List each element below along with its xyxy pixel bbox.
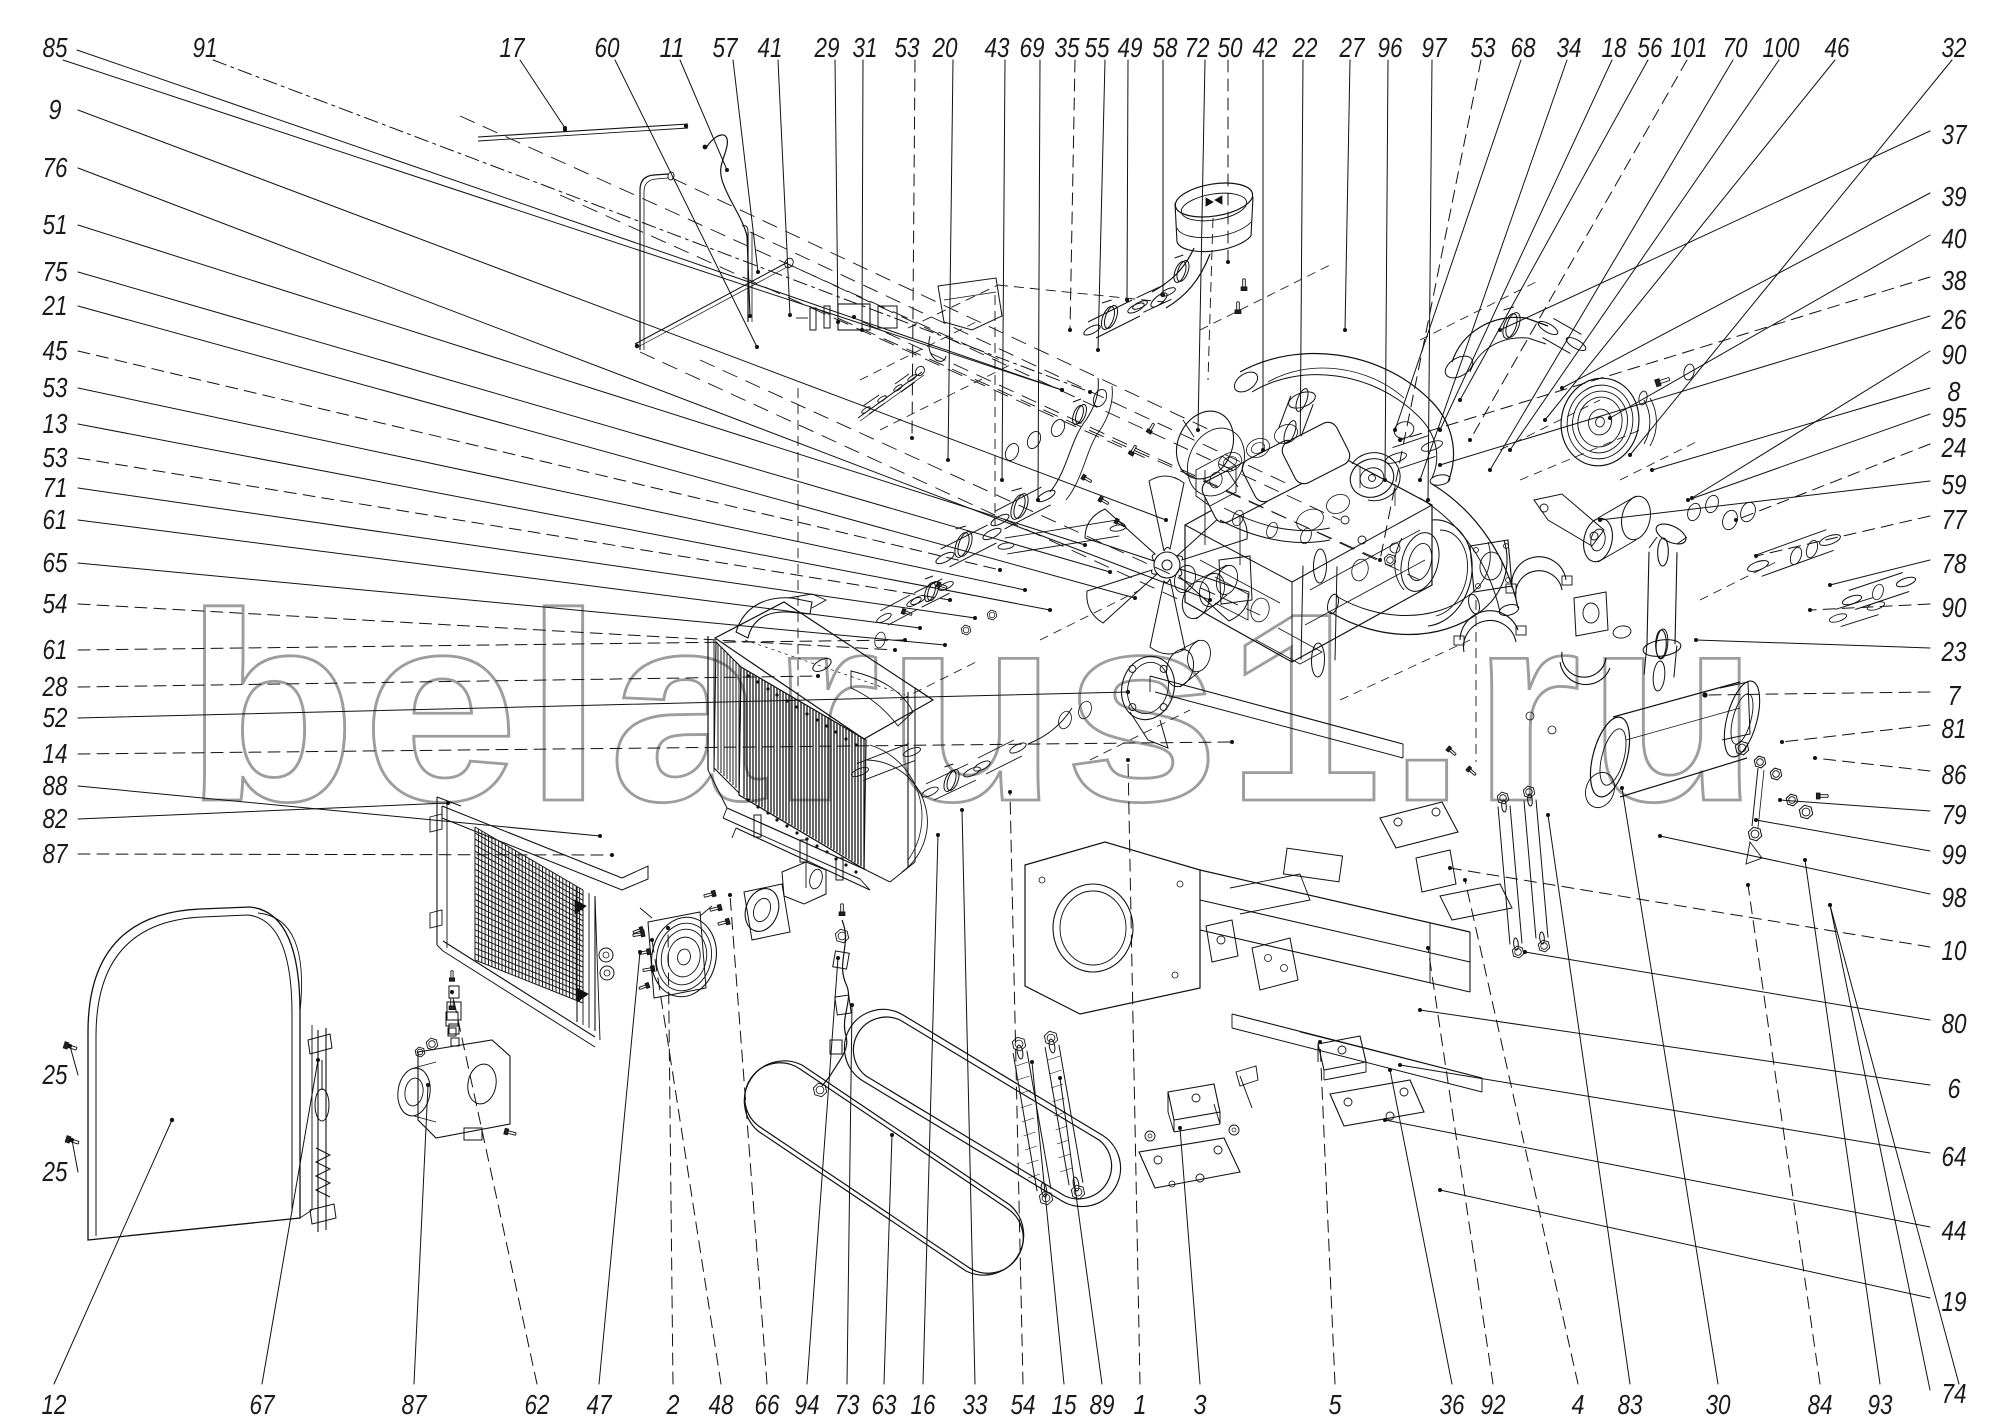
svg-text:34: 34 <box>1557 32 1582 63</box>
svg-text:38: 38 <box>1942 265 1967 296</box>
svg-text:96: 96 <box>1378 32 1403 63</box>
svg-text:88: 88 <box>43 770 68 801</box>
svg-text:27: 27 <box>1339 32 1366 63</box>
svg-text:92: 92 <box>1481 1389 1506 1420</box>
svg-text:71: 71 <box>43 472 68 503</box>
svg-text:99: 99 <box>1942 839 1967 870</box>
svg-text:95: 95 <box>1942 402 1967 433</box>
svg-text:16: 16 <box>911 1389 936 1420</box>
svg-text:63: 63 <box>872 1389 897 1420</box>
svg-text:84: 84 <box>1808 1389 1833 1420</box>
svg-text:31: 31 <box>853 32 878 63</box>
svg-text:22: 22 <box>1292 32 1318 63</box>
svg-text:87: 87 <box>402 1389 428 1420</box>
svg-text:30: 30 <box>1706 1389 1731 1420</box>
svg-text:49: 49 <box>1118 32 1143 63</box>
svg-text:43: 43 <box>985 32 1010 63</box>
svg-text:1: 1 <box>1134 1389 1147 1420</box>
svg-text:13: 13 <box>43 408 68 439</box>
svg-text:93: 93 <box>1868 1389 1893 1420</box>
svg-text:75: 75 <box>43 256 68 287</box>
svg-text:62: 62 <box>525 1389 550 1420</box>
svg-text:7: 7 <box>1948 680 1962 711</box>
svg-text:101: 101 <box>1671 32 1708 63</box>
svg-text:50: 50 <box>1218 32 1243 63</box>
svg-text:57: 57 <box>713 32 739 63</box>
svg-text:24: 24 <box>1941 432 1967 463</box>
svg-text:45: 45 <box>43 335 68 366</box>
svg-text:28: 28 <box>42 671 68 702</box>
svg-text:3: 3 <box>1194 1389 1207 1420</box>
svg-text:36: 36 <box>1440 1389 1465 1420</box>
svg-text:47: 47 <box>587 1389 613 1420</box>
svg-text:48: 48 <box>709 1389 734 1420</box>
svg-text:61: 61 <box>43 634 68 665</box>
svg-text:19: 19 <box>1942 1286 1967 1317</box>
svg-text:68: 68 <box>1511 32 1536 63</box>
svg-text:65: 65 <box>43 547 68 578</box>
svg-text:60: 60 <box>595 32 620 63</box>
svg-text:39: 39 <box>1942 181 1967 212</box>
svg-text:77: 77 <box>1942 504 1968 535</box>
svg-text:11: 11 <box>660 32 685 63</box>
svg-text:12: 12 <box>42 1389 67 1420</box>
svg-text:69: 69 <box>1020 32 1045 63</box>
svg-text:41: 41 <box>758 32 783 63</box>
svg-text:20: 20 <box>932 32 958 63</box>
svg-text:17: 17 <box>500 32 526 63</box>
svg-text:78: 78 <box>1942 548 1967 579</box>
svg-text:51: 51 <box>43 209 68 240</box>
svg-text:10: 10 <box>1942 935 1967 966</box>
svg-text:53: 53 <box>43 372 68 403</box>
svg-text:64: 64 <box>1942 1141 1967 1172</box>
svg-text:56: 56 <box>1638 32 1663 63</box>
svg-text:97: 97 <box>1422 32 1448 63</box>
svg-text:94: 94 <box>795 1389 820 1420</box>
svg-text:74: 74 <box>1942 1378 1967 1409</box>
svg-text:54: 54 <box>43 588 68 619</box>
svg-text:9: 9 <box>49 94 62 125</box>
svg-text:23: 23 <box>1941 636 1967 667</box>
svg-text:73: 73 <box>835 1389 860 1420</box>
svg-text:89: 89 <box>1090 1389 1115 1420</box>
svg-text:55: 55 <box>1085 32 1110 63</box>
svg-text:5: 5 <box>1329 1389 1342 1420</box>
svg-text:29: 29 <box>814 32 840 63</box>
svg-text:21: 21 <box>42 290 68 321</box>
svg-text:85: 85 <box>43 32 68 63</box>
svg-text:44: 44 <box>1942 1215 1967 1246</box>
svg-text:82: 82 <box>43 803 68 834</box>
svg-text:25: 25 <box>42 1059 68 1090</box>
svg-text:66: 66 <box>755 1389 780 1420</box>
svg-text:98: 98 <box>1942 882 1967 913</box>
svg-text:18: 18 <box>1602 32 1627 63</box>
svg-text:67: 67 <box>250 1389 276 1420</box>
svg-text:72: 72 <box>1185 32 1210 63</box>
svg-text:14: 14 <box>43 738 68 769</box>
svg-text:90: 90 <box>1942 592 1967 623</box>
svg-text:37: 37 <box>1942 119 1968 150</box>
svg-text:32: 32 <box>1942 32 1967 63</box>
svg-text:81: 81 <box>1942 713 1967 744</box>
svg-text:100: 100 <box>1763 32 1800 63</box>
svg-text:53: 53 <box>1471 32 1496 63</box>
svg-text:87: 87 <box>43 838 69 869</box>
svg-text:70: 70 <box>1723 32 1748 63</box>
svg-text:80: 80 <box>1942 1008 1967 1039</box>
svg-text:46: 46 <box>1825 32 1850 63</box>
svg-text:33: 33 <box>963 1389 988 1420</box>
svg-text:91: 91 <box>193 32 218 63</box>
svg-text:90: 90 <box>1942 339 1967 370</box>
svg-text:54: 54 <box>1011 1389 1036 1420</box>
svg-text:25: 25 <box>42 1156 68 1187</box>
svg-text:61: 61 <box>43 504 68 535</box>
svg-text:86: 86 <box>1942 759 1967 790</box>
svg-text:76: 76 <box>43 152 68 183</box>
svg-text:6: 6 <box>1948 1073 1961 1104</box>
svg-text:15: 15 <box>1052 1389 1077 1420</box>
svg-text:83: 83 <box>1618 1389 1643 1420</box>
svg-text:2: 2 <box>666 1389 680 1420</box>
svg-text:35: 35 <box>1055 32 1080 63</box>
svg-text:79: 79 <box>1942 799 1967 830</box>
svg-text:belarus1.ru: belarus1.ru <box>185 557 1765 857</box>
svg-text:58: 58 <box>1153 32 1178 63</box>
svg-text:53: 53 <box>895 32 920 63</box>
svg-text:53: 53 <box>43 442 68 473</box>
svg-text:4: 4 <box>1572 1389 1585 1420</box>
svg-text:52: 52 <box>43 702 68 733</box>
svg-text:59: 59 <box>1942 469 1967 500</box>
svg-text:26: 26 <box>1941 304 1967 335</box>
svg-text:40: 40 <box>1942 223 1967 254</box>
svg-text:42: 42 <box>1253 32 1278 63</box>
